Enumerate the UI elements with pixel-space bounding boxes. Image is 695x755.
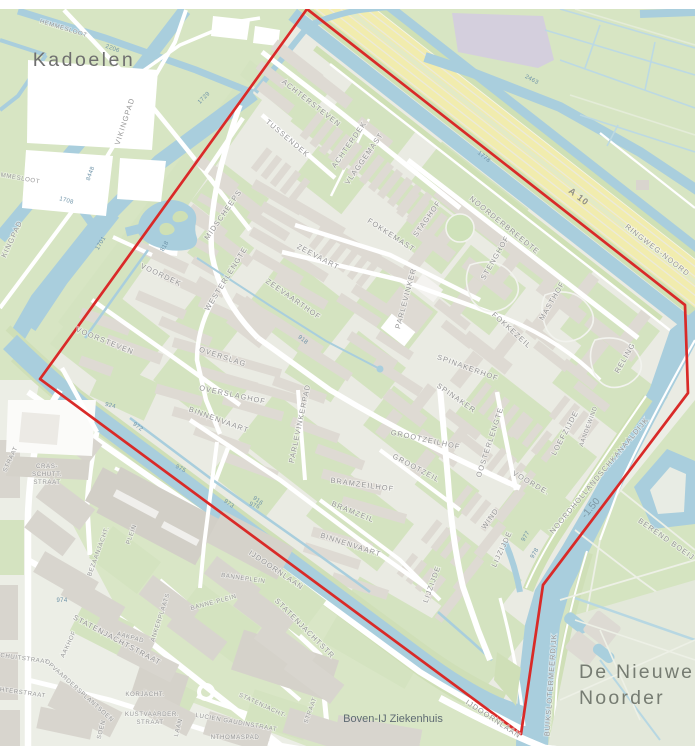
svg-text:NTHOMASPAD: NTHOMASPAD: [211, 734, 260, 741]
svg-text:Boven-IJ Ziekenhuis: Boven-IJ Ziekenhuis: [343, 713, 443, 725]
svg-text:SCHUTT.: SCHUTT.: [32, 471, 62, 478]
svg-text:CRAS-: CRAS-: [36, 463, 58, 470]
svg-text:STRAAT: STRAAT: [33, 479, 60, 486]
svg-text:KORJACHT.: KORJACHT.: [125, 691, 164, 698]
svg-text:Kadoelen: Kadoelen: [33, 49, 135, 71]
svg-text:KUSTVAARDER.: KUSTVAARDER.: [125, 711, 179, 718]
svg-text:Noorder: Noorder: [579, 687, 665, 709]
svg-text:De Nieuwe: De Nieuwe: [579, 661, 694, 683]
svg-text:974: 974: [57, 598, 68, 604]
svg-text:STRAAT: STRAAT: [136, 719, 163, 726]
